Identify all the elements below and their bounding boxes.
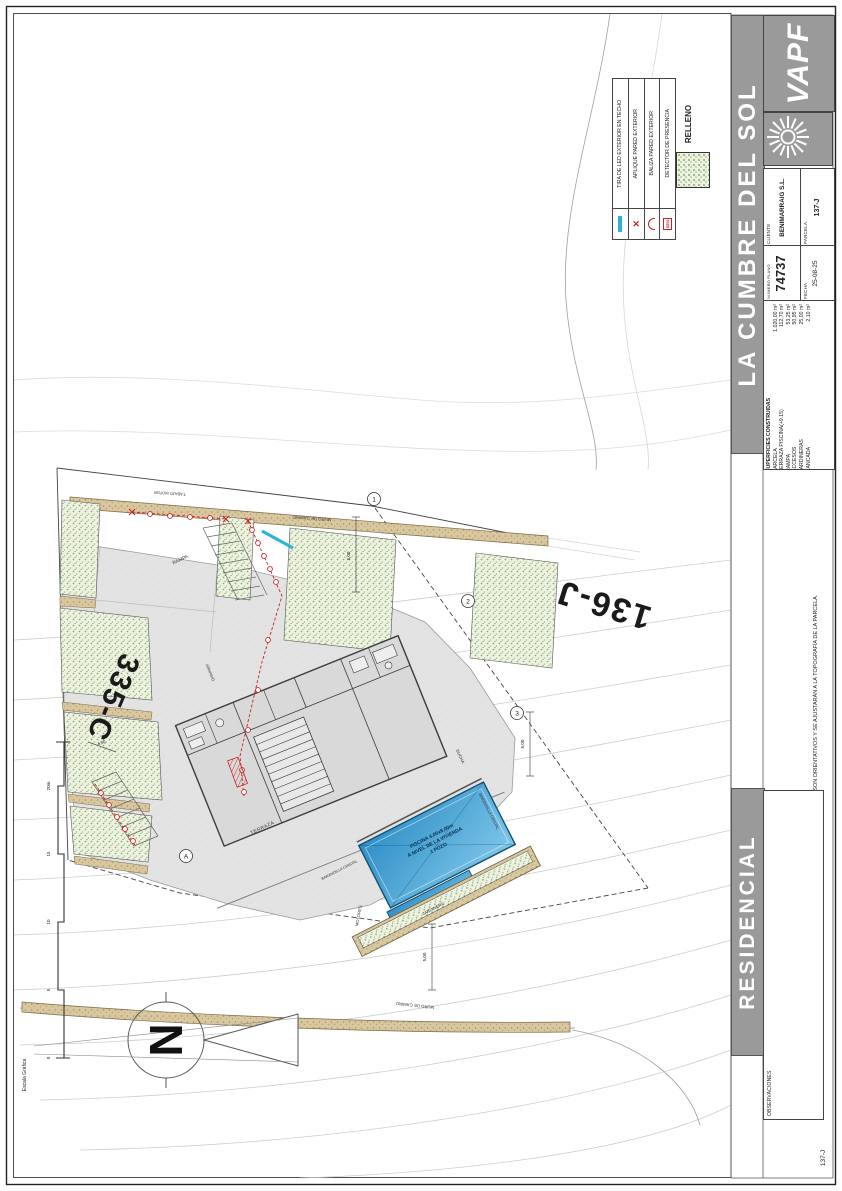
development-band: LA CUMBRE DEL SOL <box>731 15 765 454</box>
baliza-icon <box>648 218 655 230</box>
legend-item-led: TIRA DE LED EXTERIOR EN TECHO <box>617 100 623 188</box>
levels-note: LOS NIVELES SON ORIENTATIVOS Y SE AJUSTA… <box>800 468 833 828</box>
numero-plano-value: 74737 <box>773 246 788 301</box>
superficies-row: PARCELA1.020,00 m² <box>773 304 780 470</box>
plan-drawing: PISCINA 4,00x8,00m A NIVEL DE LA VIVIEND… <box>0 0 842 1191</box>
svg-text:15: 15 <box>46 851 51 857</box>
cliente-label: CLIENTE <box>764 169 771 246</box>
svg-text:20m: 20m <box>46 781 51 790</box>
svg-text:3: 3 <box>515 711 519 718</box>
sun-icon <box>764 113 812 161</box>
relleno-swatch <box>676 152 710 188</box>
aplique-icon: ✕ <box>632 219 640 230</box>
vapf-logo: VAPF <box>763 15 835 112</box>
residential-band: RESIDENCIAL JAZMINES <box>731 788 765 1056</box>
residential-title: RESIDENCIAL JAZMINES <box>732 789 764 1055</box>
graphic-scale: 20m 15 10 5 0 Escala Gráfica <box>22 742 70 1091</box>
levels-note-box: LOS NIVELES SON ORIENTATIVOS Y SE AJUSTA… <box>800 468 833 828</box>
legend-symbols: ✕ SEN <box>613 208 675 239</box>
legend-item-aplique: APLIQUE PARED EXTERIOR <box>633 109 639 178</box>
sheet-number: 137-J <box>816 1138 832 1178</box>
fecha-value: 25-08-25 <box>812 246 819 301</box>
site-plan-sheet: PISCINA 4,00x8,00m A NIVEL DE LA VIVIEND… <box>0 0 842 1191</box>
parcela-box: PARCELA 137-J <box>800 168 835 247</box>
superficies-row: RAMPA53,25 m² <box>786 304 793 470</box>
relleno-legend: RELLENO <box>678 95 700 153</box>
svg-text:2: 2 <box>466 599 470 606</box>
dim-label-3: 5,00 <box>422 952 427 961</box>
superficies-row: ACCESOS50,95 m² <box>792 304 799 470</box>
observaciones-label: OBSERVACIONES <box>764 791 773 1119</box>
parcel-number-right: 136-J <box>552 572 656 637</box>
development-title: LA CUMBRE DEL SOL <box>732 16 764 453</box>
fecha-box: FECHA 25-08-25 <box>800 245 835 302</box>
fecha-label: FECHA <box>801 246 808 301</box>
superficies-row: JARDINERAS25,00 m² <box>799 304 806 470</box>
numero-plano-box: NUMERO PLANO 74737 <box>763 245 802 302</box>
parcela-value: 137-J <box>814 169 821 246</box>
detector-icon: SEN <box>663 218 672 230</box>
legend-labels: TIRA DE LED EXTERIOR EN TECHO APLIQUE PA… <box>613 79 675 208</box>
superficies-row: BANCADA2,10 m² <box>806 304 813 470</box>
led-strip-icon <box>618 216 622 232</box>
legend: TIRA DE LED EXTERIOR EN TECHO APLIQUE PA… <box>612 78 676 240</box>
parcela-label: PARCELA <box>801 169 808 246</box>
sun-logo <box>763 112 833 166</box>
svg-text:1: 1 <box>372 497 376 504</box>
led-strip <box>262 531 293 548</box>
cliente-value: BENIMARRAIG S.L. <box>779 169 786 246</box>
superficies-row: TERRAZA PISCINA(+9.15)112,70 m² <box>779 304 786 470</box>
scale-title: Escala Gráfica <box>22 1059 28 1092</box>
svg-text:10: 10 <box>46 919 51 925</box>
north-letter: N <box>140 1023 192 1056</box>
muro-bottom-label: MURO DE CAMINO <box>395 1001 435 1010</box>
superficies-title: SUPERFICIES CONSTRUIDAS <box>766 304 773 470</box>
dim-label-1: 5,00 <box>346 551 351 560</box>
observaciones-box: OBSERVACIONES <box>763 790 824 1120</box>
svg-text:0: 0 <box>46 1056 51 1059</box>
dim-label-2: 5,00 <box>520 739 525 748</box>
relleno-label: RELLENO <box>678 95 700 153</box>
superficies-box: SUPERFICIES CONSTRUIDAS PARCELA1.020,00 … <box>763 300 835 470</box>
sheet-number-corner: 137-J <box>816 1138 832 1178</box>
numero-plano-label: NUMERO PLANO <box>764 246 771 301</box>
svg-text:A: A <box>184 854 189 861</box>
brand-name: VAPF <box>764 16 834 111</box>
t-abajo-label: T.ABAJO MOTOR <box>154 490 187 497</box>
legend-item-detector: DETECTOR DE PRESENCIA <box>665 109 671 178</box>
legend-item-baliza: BALIZA PARED EXTERIOR <box>649 111 655 175</box>
cliente-box: CLIENTE BENIMARRAIG S.L. <box>763 168 802 247</box>
